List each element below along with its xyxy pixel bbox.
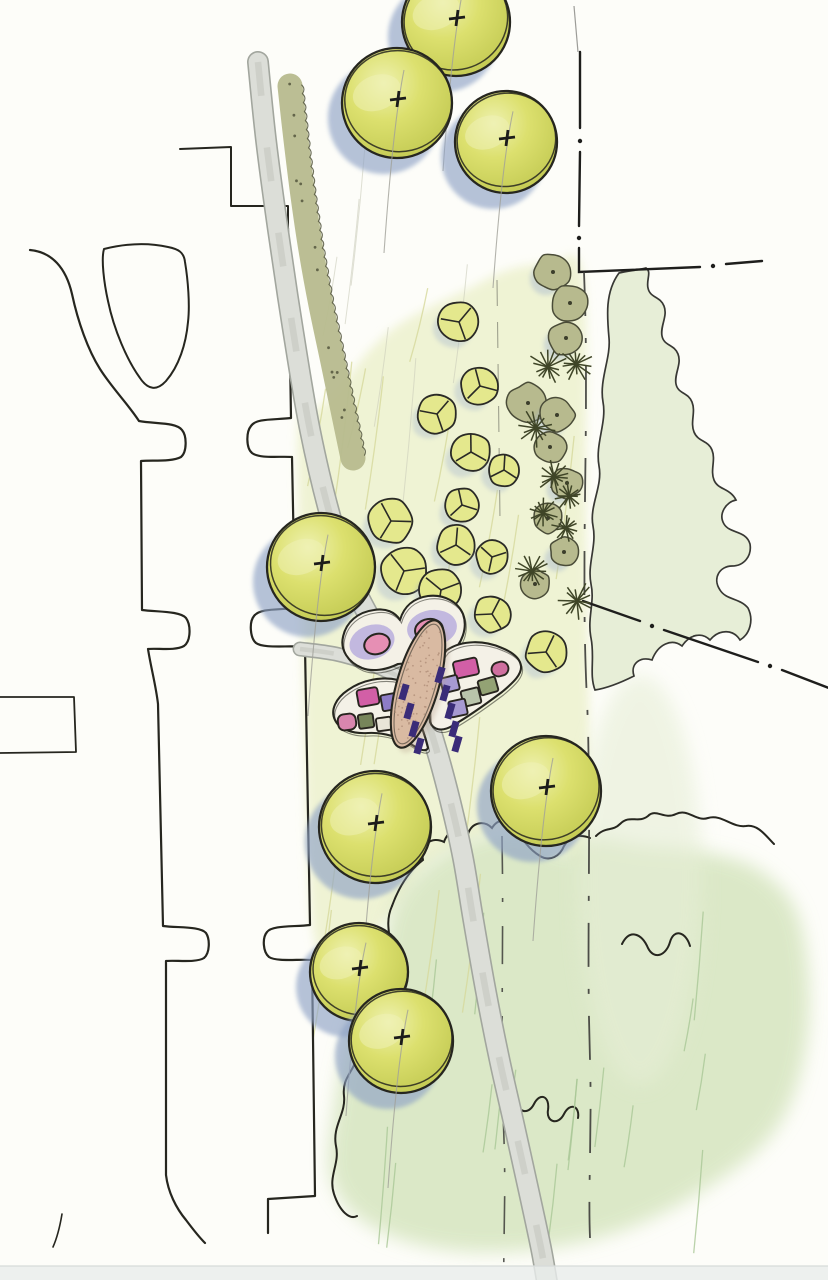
stipple-dot <box>407 737 409 739</box>
stipple-dot <box>419 647 421 649</box>
planting-bed <box>337 713 357 731</box>
hedge-dot <box>295 179 298 182</box>
stipple-dot <box>400 686 402 688</box>
small-tree-branch <box>391 521 411 522</box>
dashdot-dot <box>768 664 772 668</box>
stipple-dot <box>425 697 427 699</box>
hedge-dot <box>293 114 296 117</box>
small-tree-branch <box>504 455 505 470</box>
grass-center <box>534 426 537 429</box>
stipple-dot <box>406 669 408 671</box>
small-tree-branch <box>475 614 492 615</box>
grass-center <box>546 365 549 368</box>
stipple-dot <box>397 714 399 716</box>
grass-center <box>567 494 570 497</box>
plus-mark-v <box>321 555 323 571</box>
stipple-dot <box>403 701 405 703</box>
plus-mark-v <box>359 960 361 976</box>
stipple-dot <box>407 720 409 722</box>
dashdot-dot <box>578 139 582 143</box>
stipple-dot <box>412 665 414 667</box>
dashdot-dot <box>650 624 654 628</box>
shrub-center-dot <box>562 550 566 554</box>
stipple-dot <box>394 711 396 713</box>
stipple-dot <box>428 637 430 639</box>
grass-center <box>574 362 577 365</box>
hedge-dot <box>331 371 334 374</box>
planting-bed <box>356 687 380 707</box>
landscape-plan-sketch <box>0 0 828 1280</box>
hedge-dot <box>343 409 346 412</box>
dashdot-dot <box>711 264 715 268</box>
plus-mark-v <box>401 1029 403 1045</box>
grass-center <box>575 599 578 602</box>
shrub-center-dot <box>526 401 530 405</box>
scan-edge-band <box>0 1266 828 1280</box>
stipple-dot <box>427 670 429 672</box>
stipple-dot <box>427 681 429 683</box>
hedge-dot <box>332 376 335 379</box>
plus-mark-v <box>546 779 548 795</box>
stipple-dot <box>413 713 415 715</box>
stipple-dot <box>426 630 428 632</box>
grove-wash-extension <box>578 675 702 1085</box>
hedge-dot <box>316 268 319 271</box>
hedge-dot <box>340 416 343 419</box>
hedge-dot <box>314 246 317 249</box>
stipple-dot <box>428 647 430 649</box>
stipple-dot <box>401 719 403 721</box>
stipple-dot <box>408 662 410 664</box>
site-plan-drawing <box>0 0 828 1280</box>
stipple-dot <box>421 635 423 637</box>
shrub-center-dot <box>564 336 568 340</box>
plus-mark-v <box>375 815 377 831</box>
dashdot-dot <box>577 236 581 240</box>
stipple-dot <box>425 662 427 664</box>
shrub-center-dot <box>555 413 559 417</box>
stipple-dot <box>437 654 439 656</box>
grass-center <box>541 511 544 514</box>
stipple-dot <box>401 711 403 713</box>
stipple-dot <box>420 697 422 699</box>
stipple-dot <box>428 675 430 677</box>
grass-blade <box>536 428 537 448</box>
stipple-dot <box>432 688 434 690</box>
stipple-dot <box>413 702 415 704</box>
stipple-dot <box>419 671 421 673</box>
hedge-dot <box>336 371 339 374</box>
stipple-dot <box>433 675 435 677</box>
grass-center <box>530 569 533 572</box>
stipple-dot <box>422 645 424 647</box>
hedge-dot <box>301 199 304 202</box>
stipple-dot <box>400 682 402 684</box>
stipple-dot <box>401 725 403 727</box>
stipple-dot <box>430 673 432 675</box>
stipple-dot <box>425 671 427 673</box>
stipple-dot <box>398 706 400 708</box>
grass-blade <box>558 600 577 601</box>
stipple-dot <box>426 685 428 687</box>
stipple-dot <box>428 654 430 656</box>
shrub-center-dot <box>533 582 537 586</box>
grass-center <box>552 475 555 478</box>
hedge-dot <box>293 135 296 138</box>
stipple-dot <box>420 665 422 667</box>
shrub-center-dot <box>548 445 552 449</box>
stipple-dot <box>394 709 396 711</box>
hedge-dot <box>288 83 291 86</box>
stipple-dot <box>415 682 417 684</box>
stipple-dot <box>439 631 441 633</box>
stipple-dot <box>398 728 400 730</box>
stipple-dot <box>432 659 434 661</box>
stipple-dot <box>413 694 415 696</box>
stipple-dot <box>423 642 425 644</box>
hedge-dot <box>327 346 330 349</box>
stipple-dot <box>407 668 409 670</box>
stipple-dot <box>438 652 440 654</box>
plus-mark-v <box>456 10 458 26</box>
stipple-dot <box>408 723 410 725</box>
shrub-center-dot <box>568 301 572 305</box>
stipple-dot <box>436 665 438 667</box>
plus-mark-v <box>506 130 508 146</box>
shrub <box>534 432 567 463</box>
shrub <box>552 286 587 321</box>
stipple-dot <box>416 713 418 715</box>
stipple-dot <box>412 678 414 680</box>
planting-bed <box>358 713 375 729</box>
stipple-dot <box>396 700 398 702</box>
stipple-dot <box>424 684 426 686</box>
hedge-dot <box>299 182 302 185</box>
plus-mark-v <box>397 91 399 107</box>
grass-center <box>564 526 567 529</box>
stipple-dot <box>408 676 410 678</box>
stipple-dot <box>410 655 412 657</box>
stipple-dot <box>424 713 426 715</box>
paper-bottom-edge <box>0 1266 828 1280</box>
stipple-dot <box>425 658 427 660</box>
stipple-dot <box>420 660 422 662</box>
stipple-dot <box>401 707 403 709</box>
stipple-dot <box>425 706 427 708</box>
stipple-dot <box>426 690 428 692</box>
shrub-center-dot <box>551 270 555 274</box>
dashdot-segment-1 <box>579 152 580 226</box>
